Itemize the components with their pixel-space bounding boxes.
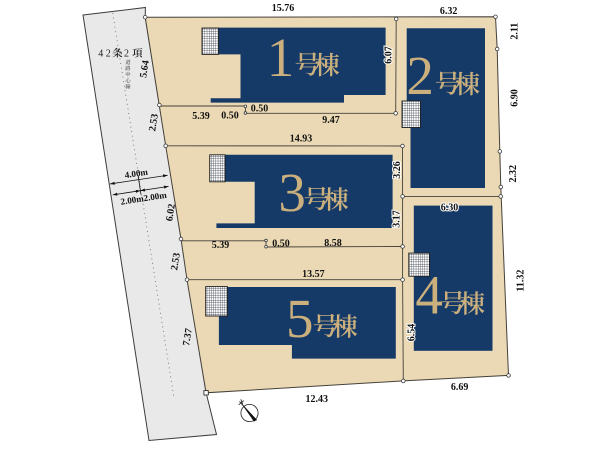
- svg-text:15.76: 15.76: [272, 3, 295, 14]
- svg-text:6.32: 6.32: [440, 6, 458, 17]
- svg-text:8.58: 8.58: [324, 238, 342, 249]
- svg-text:6.07: 6.07: [384, 46, 395, 64]
- svg-text:14.93: 14.93: [290, 134, 313, 145]
- svg-text:5.39: 5.39: [212, 240, 230, 251]
- svg-text:3.26: 3.26: [392, 161, 403, 179]
- svg-text:2: 2: [106, 48, 111, 59]
- svg-text:2: 2: [124, 48, 129, 59]
- svg-text:4: 4: [415, 265, 443, 326]
- svg-text:3: 3: [278, 162, 306, 223]
- svg-text:1: 1: [267, 27, 295, 88]
- svg-text:12.43: 12.43: [306, 394, 329, 405]
- svg-text:6.54: 6.54: [406, 324, 417, 342]
- svg-text:3.17: 3.17: [392, 210, 403, 228]
- svg-text:6.69: 6.69: [451, 382, 469, 393]
- svg-text:4: 4: [98, 48, 103, 59]
- svg-text:5.39: 5.39: [192, 111, 210, 122]
- svg-text:11.32: 11.32: [516, 270, 527, 292]
- svg-text:2: 2: [406, 45, 434, 106]
- svg-text:0.50: 0.50: [251, 104, 269, 115]
- svg-text:5: 5: [286, 288, 314, 349]
- svg-text:6.90: 6.90: [510, 89, 521, 107]
- svg-text:0.50: 0.50: [272, 238, 290, 249]
- svg-text:13.57: 13.57: [302, 269, 325, 280]
- svg-text:9.47: 9.47: [322, 115, 340, 126]
- svg-text:6.30: 6.30: [441, 203, 459, 214]
- svg-text:2.32: 2.32: [508, 165, 519, 183]
- svg-text:2.11: 2.11: [510, 23, 521, 40]
- svg-text:0.50: 0.50: [221, 111, 239, 122]
